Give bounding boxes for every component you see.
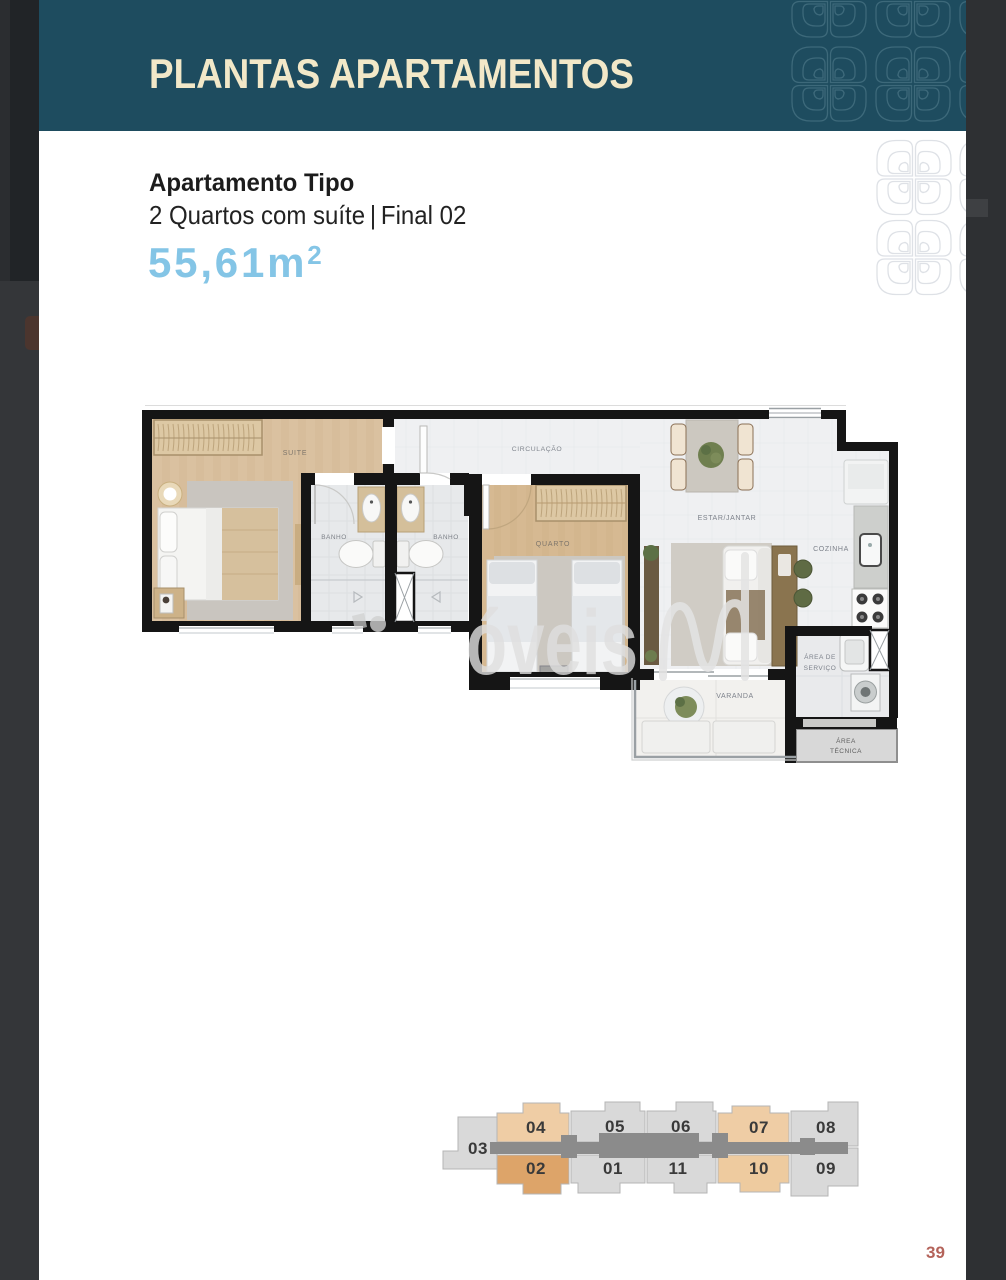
svg-text:SERVIÇO: SERVIÇO — [804, 665, 837, 672]
svg-text:SUITE: SUITE — [283, 450, 308, 457]
svg-text:03: 03 — [468, 1139, 488, 1158]
svg-text:08: 08 — [816, 1118, 836, 1137]
svg-text:10: 10 — [749, 1159, 769, 1178]
svg-text:COZINHA: COZINHA — [813, 546, 849, 553]
svg-text:ÁREA: ÁREA — [836, 736, 856, 745]
svg-text:11: 11 — [669, 1159, 688, 1178]
svg-text:01: 01 — [603, 1159, 623, 1178]
svg-text:02: 02 — [526, 1159, 546, 1178]
svg-text:ESTAR/JANTAR: ESTAR/JANTAR — [698, 515, 757, 522]
svg-text:BANHO: BANHO — [433, 534, 459, 541]
svg-text:TÉCNICA: TÉCNICA — [830, 746, 862, 755]
svg-text:QUARTO: QUARTO — [536, 541, 571, 548]
svg-text:CIRCULAÇÃO: CIRCULAÇÃO — [512, 444, 563, 453]
svg-text:óveis: óveis — [466, 592, 638, 694]
svg-text:07: 07 — [749, 1118, 769, 1137]
svg-text:ÁREA DE: ÁREA DE — [804, 652, 836, 661]
svg-text:BANHO: BANHO — [321, 534, 347, 541]
svg-text:04: 04 — [526, 1118, 546, 1137]
svg-text:VARANDA: VARANDA — [716, 693, 754, 700]
svg-text:09: 09 — [816, 1159, 836, 1178]
